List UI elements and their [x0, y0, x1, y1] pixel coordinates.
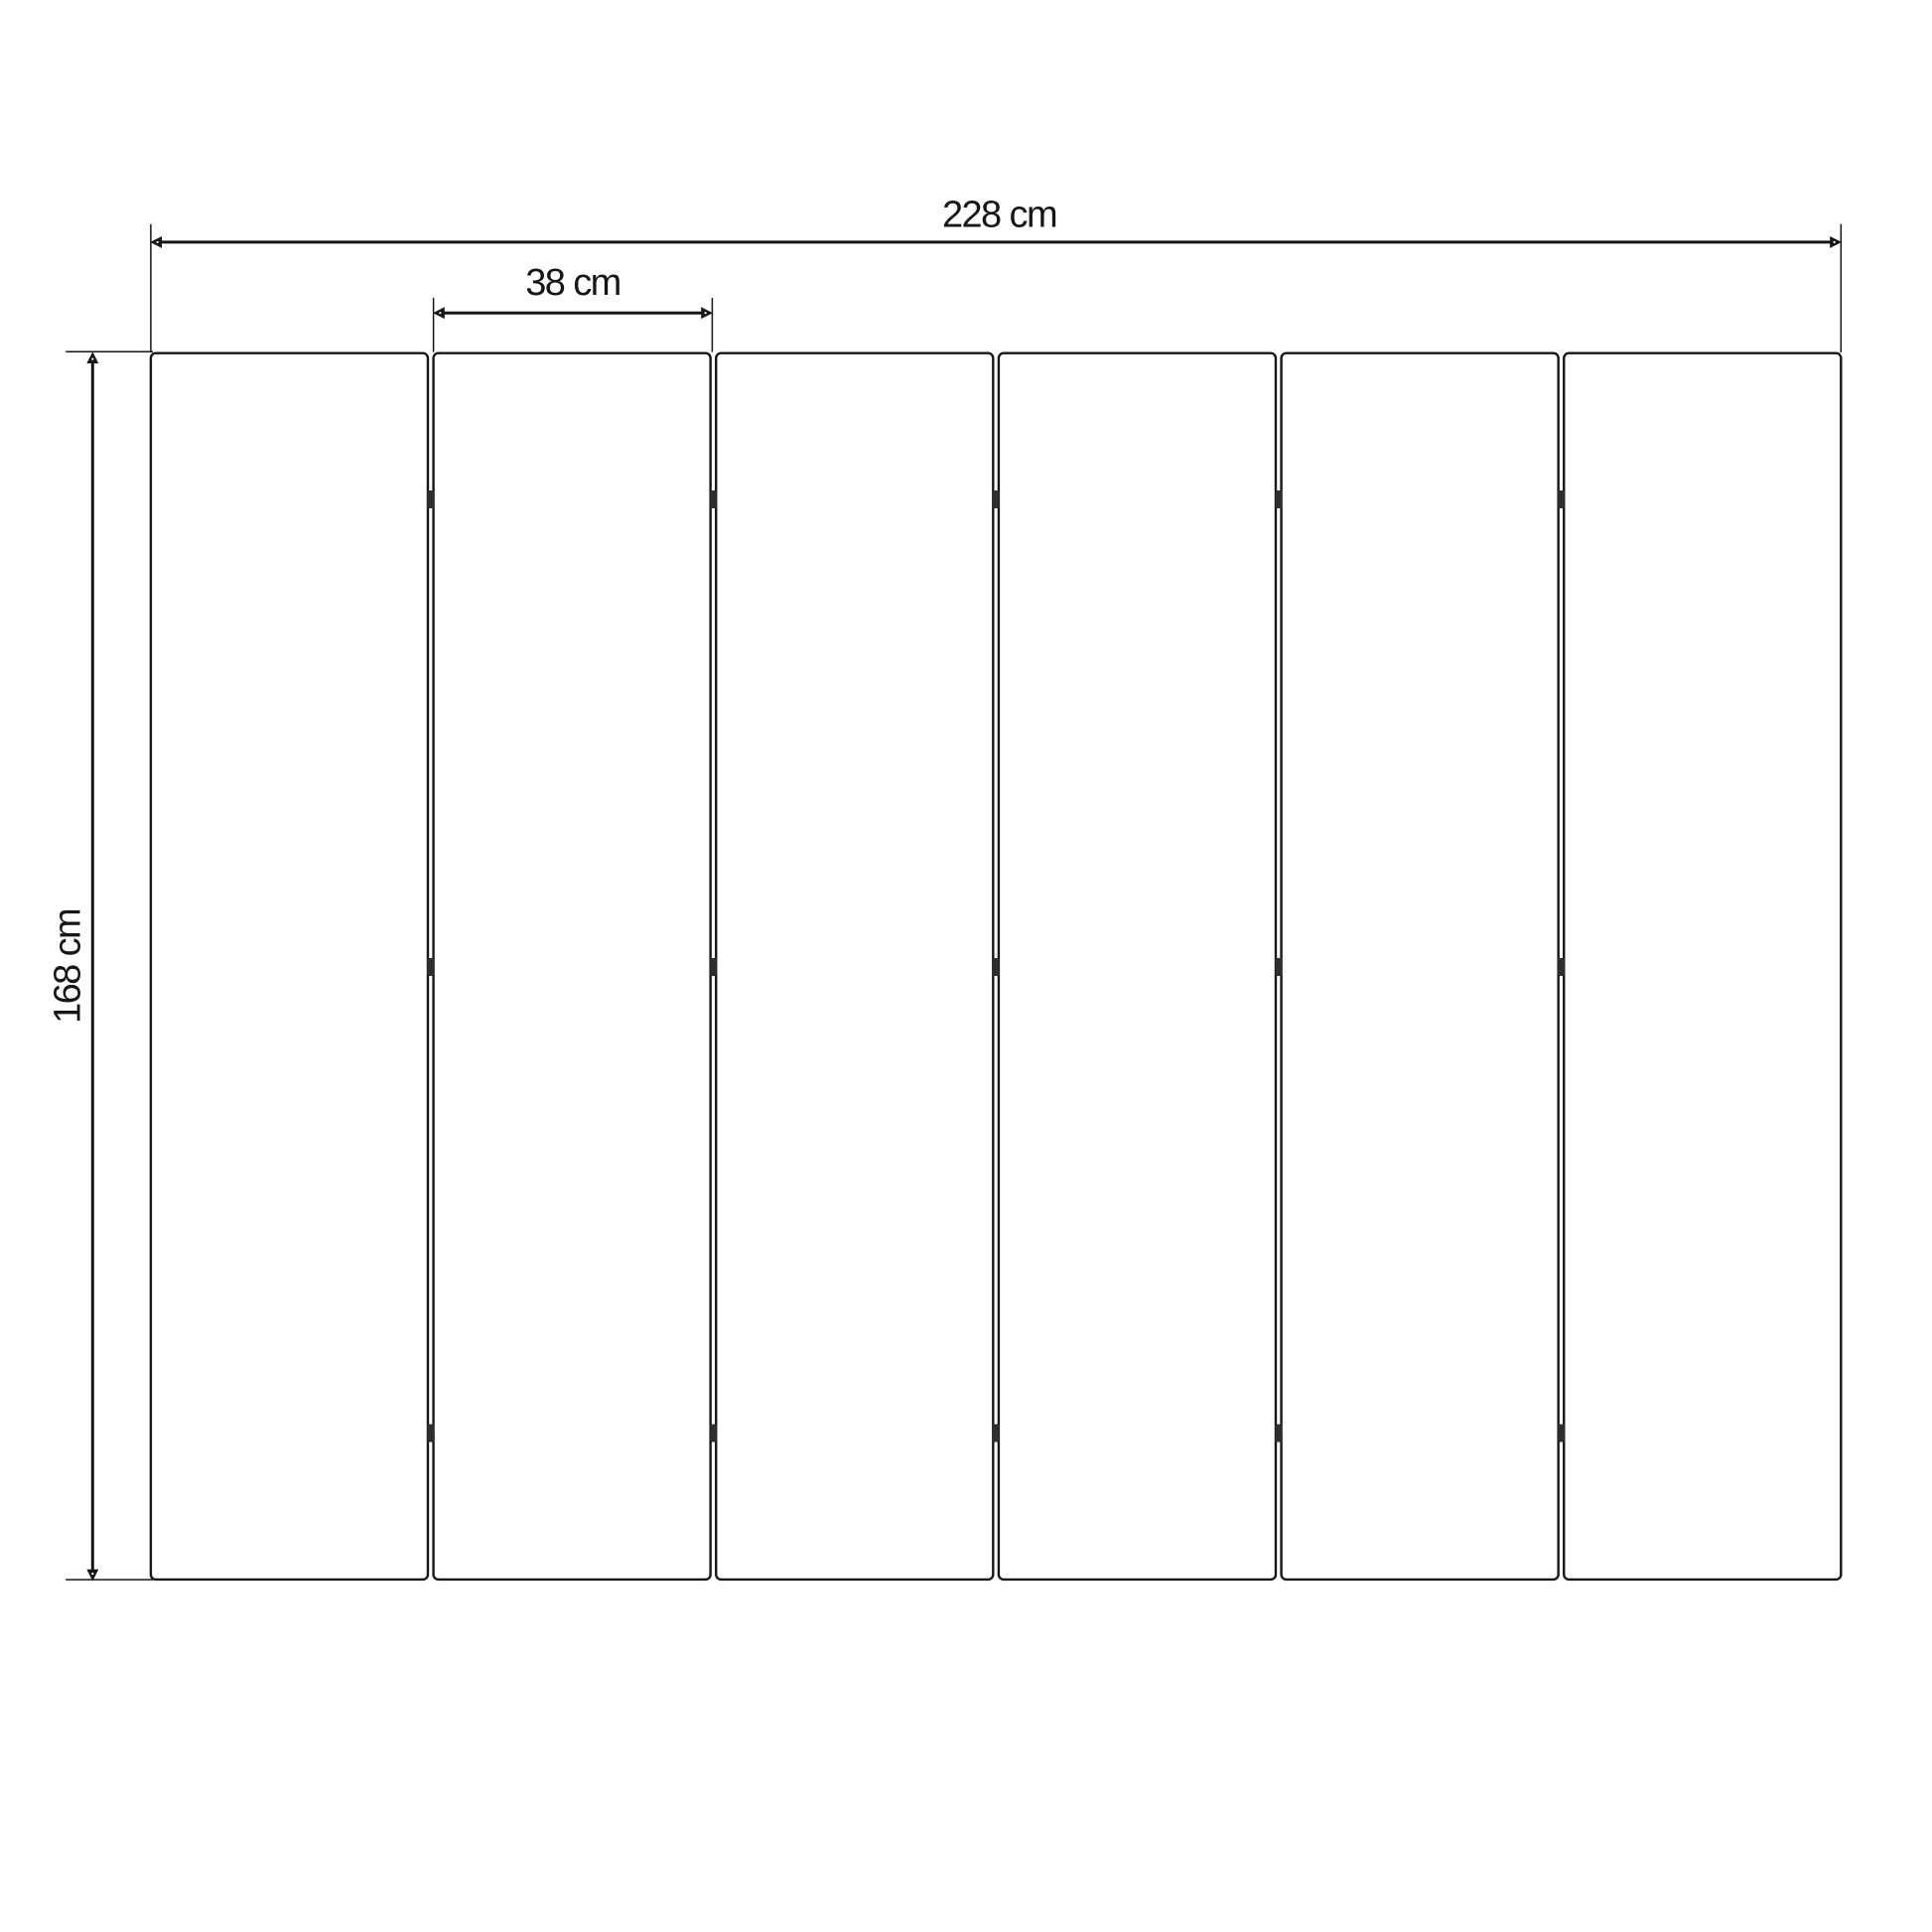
svg-text:228 cm: 228 cm [942, 194, 1056, 235]
svg-text:38 cm: 38 cm [525, 262, 620, 304]
svg-text:168 cm: 168 cm [48, 909, 89, 1024]
